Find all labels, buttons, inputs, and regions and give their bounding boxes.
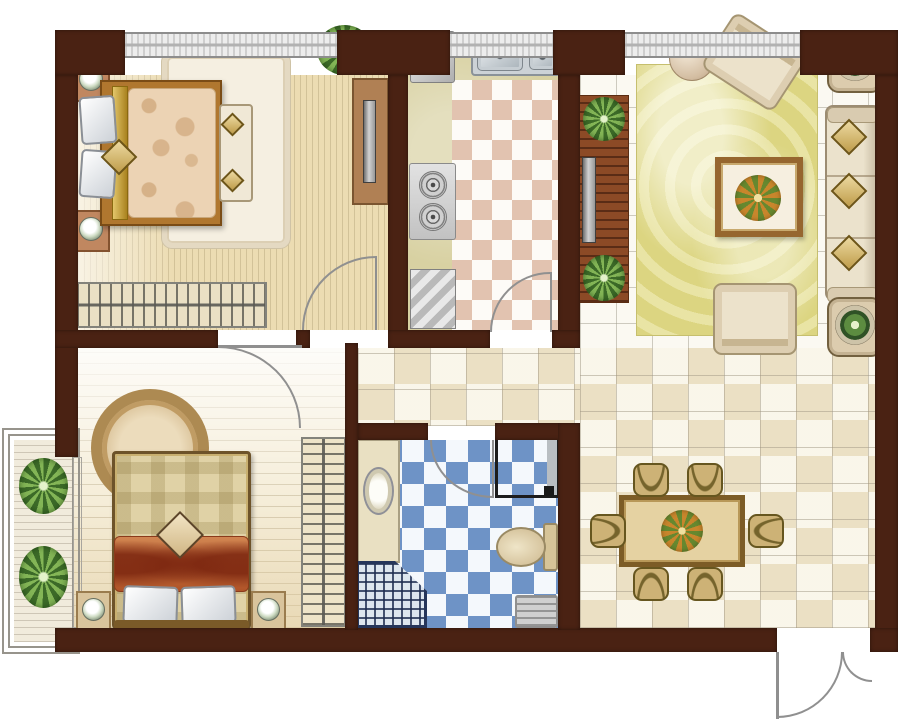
floor-plan — [0, 0, 900, 727]
bedroom2-lamp-left — [82, 598, 105, 621]
kitchen-dishwasher — [410, 269, 456, 329]
wall-bathroom-top-left — [358, 423, 428, 440]
bedroom1-tv — [363, 100, 376, 183]
wall-bedroom2-bathroom — [345, 343, 358, 630]
dining-chair-bottom-left — [633, 567, 669, 601]
wall-bottom-right-corner — [870, 628, 898, 652]
bathroom-washer-knob — [544, 486, 554, 496]
wall-bathroom-right — [558, 423, 580, 630]
balcony-plant-bottom — [19, 546, 68, 608]
bedroom1-wardrobe — [75, 282, 267, 328]
dining-chair-bottom-right — [687, 567, 723, 601]
balcony-plant-top — [19, 458, 68, 514]
wall-bedroom1-kitchen — [388, 75, 408, 348]
wall-right — [875, 75, 898, 652]
bedroom2-lamp-right — [257, 598, 280, 621]
dining-chair-left — [590, 514, 626, 548]
wall-bedroom1-bedroom2 — [55, 330, 218, 348]
bedroom2-wardrobe — [301, 437, 346, 627]
dining-chair-top-left — [633, 463, 669, 497]
kitchen-burner-bottom — [419, 203, 447, 231]
dining-floor — [580, 348, 875, 628]
wall-top-corner-left — [55, 30, 125, 75]
dining-chair-right — [748, 514, 784, 548]
living-tv — [582, 157, 596, 243]
bathroom-sink — [363, 467, 394, 515]
bedroom2-pillow-left — [122, 585, 178, 625]
wall-kitchen-bottom-left — [388, 330, 490, 348]
wall-top-pier-2 — [553, 30, 625, 75]
wall-left — [55, 75, 78, 457]
window-kitchen — [450, 32, 553, 58]
wall-top-corner-right — [800, 30, 898, 75]
wall-kitchen-bottom-right — [552, 330, 580, 348]
window-bedroom1 — [125, 32, 337, 58]
wall-bottom — [55, 628, 777, 652]
dining-chair-top-right — [687, 463, 723, 497]
bathroom-toilet — [496, 527, 546, 567]
bathroom-mat — [515, 595, 558, 628]
dining-centerpiece — [661, 510, 703, 552]
hallway-floor — [358, 348, 582, 426]
wall-top-pier-1 — [337, 30, 450, 75]
living-side-table-bottom-plant — [835, 305, 875, 345]
living-shelf-plant-bottom — [583, 255, 625, 301]
door-entry-swing-small — [842, 652, 872, 682]
door-entry-swing — [777, 652, 843, 718]
kitchen-burner-top — [419, 171, 447, 199]
bedroom1-pillow-top — [78, 95, 117, 145]
living-sofa-armrest-top — [827, 107, 879, 123]
bedroom2-pillow-right — [180, 585, 236, 625]
wall-kitchen-living — [558, 75, 580, 348]
door-kitchen-leaf — [550, 272, 552, 332]
living-coffee-table-flowers — [735, 175, 781, 221]
bedroom1-duvet — [128, 88, 216, 218]
living-armchair-bottom — [713, 283, 797, 355]
living-shelf-plant-top — [583, 97, 625, 141]
window-living-room — [625, 32, 800, 58]
